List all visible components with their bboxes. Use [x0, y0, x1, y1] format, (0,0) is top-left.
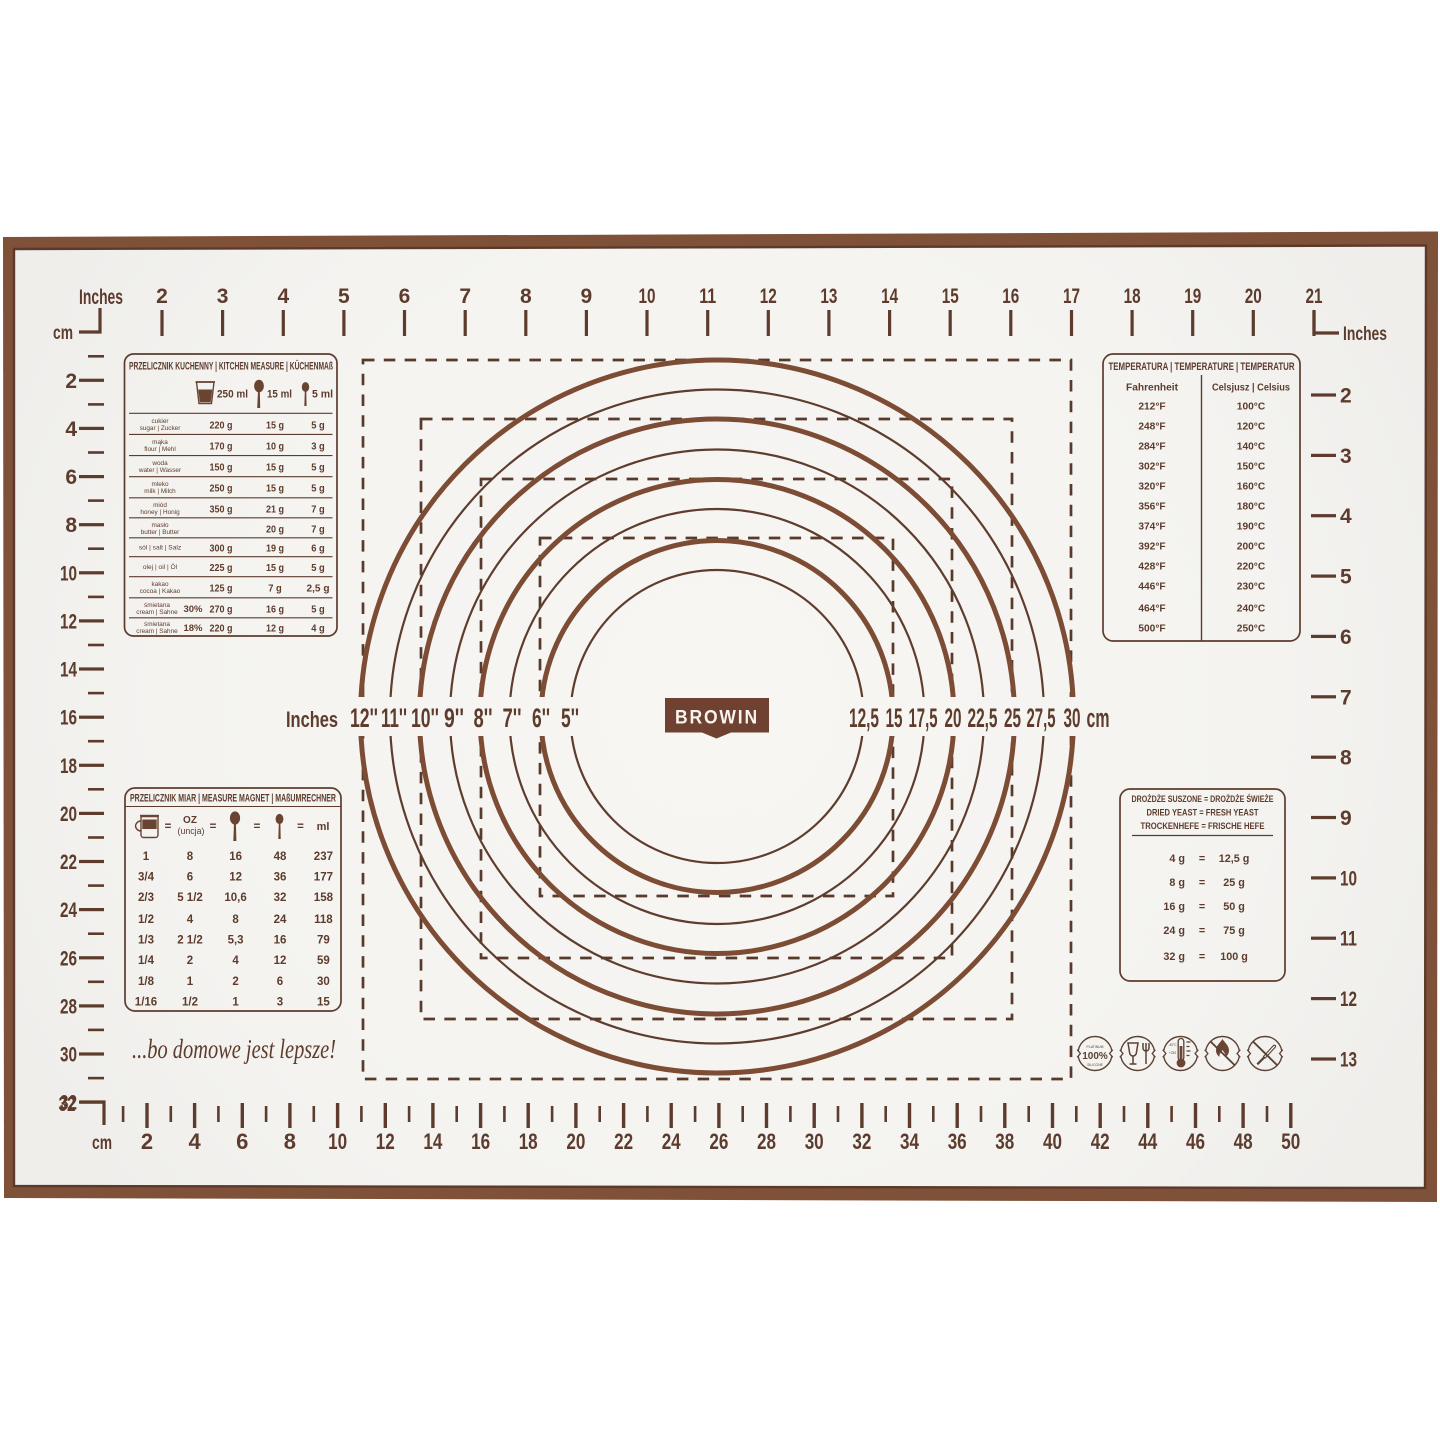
- svg-text:48: 48: [274, 851, 287, 863]
- svg-text:48: 48: [1234, 1129, 1253, 1154]
- svg-text:100 g: 100 g: [1220, 951, 1248, 963]
- svg-text:4: 4: [232, 955, 239, 967]
- svg-text:8: 8: [65, 514, 77, 537]
- svg-text:15 g: 15 g: [266, 420, 284, 432]
- svg-text:TEMPERATURA | TEMPERATURE | TE: TEMPERATURA | TEMPERATURE | TEMPERATUR: [1109, 361, 1295, 373]
- svg-text:12'': 12'': [350, 703, 378, 733]
- svg-text:18%: 18%: [183, 623, 203, 634]
- svg-text:5 g: 5 g: [311, 483, 325, 495]
- svg-text:100%: 100%: [1082, 1051, 1108, 1062]
- svg-text:BROWIN: BROWIN: [675, 708, 759, 729]
- svg-text:21: 21: [1306, 285, 1323, 308]
- svg-text:125 g: 125 g: [210, 583, 233, 595]
- svg-text:mleko: mleko: [151, 481, 168, 488]
- svg-text:14: 14: [60, 659, 77, 682]
- svg-text:cm: cm: [1087, 703, 1110, 733]
- svg-text:12: 12: [760, 285, 777, 308]
- svg-text:10: 10: [639, 285, 656, 308]
- svg-text:10: 10: [328, 1129, 347, 1154]
- svg-text:4: 4: [1340, 505, 1352, 528]
- svg-text:4: 4: [277, 285, 289, 308]
- svg-text:Inches: Inches: [79, 286, 123, 309]
- svg-text:428°F: 428°F: [1138, 562, 1165, 573]
- svg-text:42: 42: [1091, 1129, 1110, 1154]
- svg-text:2: 2: [187, 955, 193, 967]
- svg-text:21 g: 21 g: [266, 503, 284, 515]
- svg-text:190°C: 190°C: [1237, 522, 1266, 533]
- svg-text:=: =: [1199, 853, 1205, 865]
- svg-text:2: 2: [1340, 385, 1352, 408]
- svg-text:3/4: 3/4: [138, 872, 155, 884]
- svg-text:OZ: OZ: [183, 815, 197, 826]
- svg-text:10 g: 10 g: [266, 441, 284, 453]
- svg-text:34: 34: [900, 1129, 920, 1154]
- svg-text:PRZELICZNIK KUCHENNY | KITCHEN: PRZELICZNIK KUCHENNY | KITCHEN MEASURE |…: [129, 360, 333, 373]
- svg-text:15: 15: [317, 996, 330, 1008]
- svg-text:6 g: 6 g: [311, 543, 325, 555]
- svg-text:9: 9: [581, 285, 593, 308]
- svg-text:olej | oil | Öl: olej | oil | Öl: [143, 563, 178, 571]
- svg-text:17,5: 17,5: [909, 703, 938, 733]
- svg-text:5 ml: 5 ml: [312, 389, 333, 401]
- svg-text:6: 6: [187, 872, 193, 884]
- svg-text:38: 38: [995, 1129, 1014, 1154]
- svg-text:150 g: 150 g: [210, 462, 233, 474]
- svg-text:2: 2: [232, 976, 238, 988]
- svg-text:5'': 5'': [561, 703, 579, 733]
- svg-text:230°C: 230°C: [1237, 582, 1266, 593]
- svg-text:16: 16: [229, 851, 242, 863]
- svg-text:36: 36: [274, 872, 287, 884]
- svg-text:240°C: 240°C: [1237, 604, 1266, 615]
- svg-text:22: 22: [614, 1129, 633, 1154]
- svg-text:1/16: 1/16: [135, 996, 157, 1008]
- svg-text:250 g: 250 g: [210, 483, 233, 495]
- svg-text:30: 30: [805, 1129, 824, 1154]
- svg-text:11'': 11'': [381, 703, 407, 733]
- svg-text:Inches: Inches: [1343, 324, 1387, 345]
- svg-text:4: 4: [65, 418, 77, 441]
- svg-text:6: 6: [277, 976, 283, 988]
- svg-text:177: 177: [314, 872, 333, 884]
- svg-text:8 g: 8 g: [1169, 877, 1185, 889]
- svg-text:350 g: 350 g: [210, 503, 233, 515]
- svg-text:12 g: 12 g: [266, 623, 284, 635]
- svg-text:9: 9: [1340, 807, 1352, 830]
- svg-text:26: 26: [60, 947, 77, 970]
- svg-text:15: 15: [886, 703, 903, 733]
- svg-text:=: =: [1199, 925, 1205, 937]
- svg-text:2: 2: [65, 370, 77, 393]
- svg-text:30: 30: [60, 1044, 77, 1067]
- svg-text:32: 32: [274, 892, 287, 904]
- svg-text:14: 14: [423, 1129, 443, 1154]
- svg-text:=: =: [254, 821, 261, 833]
- svg-text:2: 2: [141, 1129, 153, 1154]
- svg-text:...bo domowe jest lepsze!: ...bo domowe jest lepsze!: [132, 1034, 336, 1064]
- svg-text:7 g: 7 g: [311, 503, 325, 515]
- svg-text:2,5 g: 2,5 g: [307, 583, 330, 595]
- svg-text:4 g: 4 g: [311, 623, 325, 635]
- svg-text:-40°C: -40°C: [1168, 1043, 1177, 1047]
- svg-text:44: 44: [1138, 1129, 1158, 1154]
- svg-text:118: 118: [314, 914, 333, 926]
- svg-text:PLATINUM: PLATINUM: [1087, 1045, 1104, 1049]
- svg-text:24 g: 24 g: [1163, 925, 1185, 937]
- svg-text:225 g: 225 g: [210, 562, 233, 574]
- svg-text:Fahrenheit: Fahrenheit: [1126, 383, 1179, 394]
- svg-text:170 g: 170 g: [210, 441, 233, 453]
- svg-text:śmietana: śmietana: [144, 602, 170, 609]
- svg-text:15 g: 15 g: [266, 562, 284, 574]
- svg-text:27,5: 27,5: [1027, 703, 1056, 733]
- svg-text:250 ml: 250 ml: [217, 389, 248, 401]
- svg-text:woda: woda: [151, 460, 168, 467]
- svg-text:11: 11: [699, 285, 716, 308]
- svg-text:2/3: 2/3: [138, 892, 154, 904]
- svg-text:12,5 g: 12,5 g: [1219, 853, 1250, 865]
- svg-text:8: 8: [1340, 747, 1352, 770]
- svg-text:+230: +230: [1169, 1051, 1176, 1055]
- svg-text:25: 25: [1004, 703, 1021, 733]
- svg-text:=: =: [1199, 901, 1205, 913]
- svg-text:8: 8: [284, 1129, 296, 1154]
- svg-text:15 g: 15 g: [266, 462, 284, 474]
- svg-text:PRZELICZNIK MIAR | MEASURE MAG: PRZELICZNIK MIAR | MEASURE MAGNET | MAßU…: [130, 793, 336, 805]
- svg-text:220°C: 220°C: [1237, 562, 1266, 573]
- svg-text:8: 8: [520, 285, 532, 308]
- svg-text:masło: masło: [151, 522, 168, 529]
- svg-text:=: =: [1199, 877, 1205, 889]
- svg-text:5: 5: [338, 285, 350, 308]
- svg-text:120°C: 120°C: [1237, 422, 1266, 433]
- svg-text:30%: 30%: [183, 604, 203, 615]
- svg-text:7: 7: [459, 285, 471, 308]
- svg-text:2 1/2: 2 1/2: [177, 935, 203, 947]
- svg-text:15: 15: [942, 285, 959, 308]
- svg-text:SILICONE: SILICONE: [1087, 1063, 1104, 1067]
- svg-text:392°F: 392°F: [1138, 542, 1165, 553]
- svg-text:18: 18: [60, 755, 77, 778]
- svg-text:356°F: 356°F: [1138, 502, 1165, 513]
- svg-text:16: 16: [1002, 285, 1019, 308]
- svg-text:50: 50: [1281, 1129, 1300, 1154]
- svg-text:12: 12: [274, 955, 287, 967]
- svg-text:sugar | Zucker: sugar | Zucker: [140, 425, 182, 432]
- svg-text:250°C: 250°C: [1237, 624, 1266, 635]
- svg-text:302°F: 302°F: [1138, 462, 1165, 473]
- svg-text:30: 30: [1064, 703, 1081, 733]
- svg-text:flour | Mehl: flour | Mehl: [144, 446, 176, 453]
- svg-text:4: 4: [187, 914, 194, 926]
- svg-text:1/2: 1/2: [138, 914, 154, 926]
- svg-text:200°C: 200°C: [1237, 542, 1266, 553]
- svg-text:374°F: 374°F: [1138, 522, 1165, 533]
- svg-text:5 g: 5 g: [311, 603, 325, 615]
- svg-text:50 g: 50 g: [1223, 901, 1245, 913]
- svg-text:150°C: 150°C: [1237, 462, 1266, 473]
- svg-text:26: 26: [709, 1129, 728, 1154]
- svg-text:160°C: 160°C: [1237, 482, 1266, 493]
- svg-text:12,5: 12,5: [849, 703, 879, 733]
- svg-text:cream | Sahne: cream | Sahne: [136, 628, 178, 635]
- svg-text:79: 79: [317, 935, 330, 947]
- svg-text:17: 17: [1063, 285, 1080, 308]
- svg-text:cm: cm: [53, 323, 73, 344]
- svg-text:2: 2: [156, 285, 168, 308]
- svg-text:10'': 10'': [411, 703, 439, 733]
- svg-text:śmietana: śmietana: [144, 621, 170, 628]
- svg-text:32: 32: [59, 1093, 76, 1116]
- svg-text:3: 3: [217, 285, 229, 308]
- svg-text:1: 1: [232, 996, 239, 1008]
- svg-text:24: 24: [662, 1129, 682, 1154]
- svg-text:212°F: 212°F: [1138, 402, 1165, 413]
- svg-text:DROŻDŻE SUSZONE = DROŻDŻE ŚWIE: DROŻDŻE SUSZONE = DROŻDŻE ŚWIEŻE: [1132, 793, 1274, 804]
- svg-text:15 ml: 15 ml: [267, 389, 292, 401]
- svg-text:TROCKENHEFE = FRISCHE HEFE: TROCKENHEFE = FRISCHE HEFE: [1141, 821, 1265, 831]
- svg-text:=: =: [1199, 951, 1205, 963]
- svg-text:270 g: 270 g: [210, 603, 233, 615]
- svg-text:24: 24: [274, 914, 287, 926]
- svg-text:=: =: [210, 821, 217, 833]
- svg-text:3 g: 3 g: [311, 441, 325, 453]
- svg-text:320°F: 320°F: [1138, 482, 1165, 493]
- svg-text:14: 14: [881, 285, 898, 308]
- svg-text:3: 3: [1340, 445, 1352, 468]
- svg-text:36: 36: [948, 1129, 967, 1154]
- svg-text:honey | Honig: honey | Honig: [140, 509, 180, 516]
- svg-text:1/3: 1/3: [138, 935, 154, 947]
- svg-text:7: 7: [1340, 686, 1352, 709]
- svg-text:12: 12: [229, 872, 242, 884]
- svg-text:butter | Butter: butter | Butter: [141, 529, 180, 536]
- svg-text:6'': 6'': [532, 703, 550, 733]
- svg-text:4: 4: [188, 1129, 201, 1154]
- svg-text:11: 11: [1340, 928, 1357, 951]
- svg-text:18: 18: [519, 1129, 538, 1154]
- svg-text:16: 16: [60, 707, 77, 730]
- svg-text:1: 1: [187, 976, 194, 988]
- svg-text:6: 6: [1340, 626, 1352, 649]
- svg-text:248°F: 248°F: [1138, 422, 1165, 433]
- svg-text:46: 46: [1186, 1129, 1205, 1154]
- svg-text:446°F: 446°F: [1138, 582, 1165, 593]
- svg-text:kakao: kakao: [151, 581, 168, 588]
- svg-text:milk | Milch: milk | Milch: [144, 488, 176, 495]
- svg-text:8: 8: [232, 914, 239, 926]
- svg-text:220 g: 220 g: [210, 623, 233, 635]
- svg-text:16: 16: [471, 1129, 490, 1154]
- svg-text:cocoa | Kakao: cocoa | Kakao: [140, 588, 181, 595]
- svg-text:24: 24: [60, 899, 77, 922]
- svg-text:220 g: 220 g: [210, 420, 233, 432]
- svg-text:cm: cm: [92, 1133, 112, 1154]
- svg-text:6: 6: [65, 466, 77, 489]
- svg-text:300 g: 300 g: [210, 543, 233, 555]
- svg-text:18: 18: [1124, 285, 1141, 308]
- svg-text:1/8: 1/8: [138, 976, 155, 988]
- svg-text:=: =: [165, 821, 172, 833]
- svg-text:20: 20: [60, 803, 77, 826]
- svg-text:10,6: 10,6: [224, 892, 246, 904]
- svg-text:7 g: 7 g: [311, 523, 325, 535]
- svg-text:ml: ml: [317, 821, 330, 833]
- svg-text:22,5: 22,5: [968, 703, 998, 733]
- svg-text:5 g: 5 g: [311, 562, 325, 574]
- svg-text:7 g: 7 g: [268, 583, 282, 595]
- svg-text:(uncja): (uncja): [178, 826, 205, 836]
- svg-text:1/2: 1/2: [182, 996, 198, 1008]
- svg-text:5,3: 5,3: [228, 935, 244, 947]
- svg-text:5: 5: [1340, 566, 1352, 589]
- svg-text:7'': 7'': [503, 703, 522, 733]
- svg-text:sól | salt | Salz: sól | salt | Salz: [139, 545, 181, 552]
- svg-text:1/4: 1/4: [138, 955, 155, 967]
- svg-text:8'': 8'': [474, 703, 493, 733]
- svg-text:12: 12: [60, 610, 77, 633]
- svg-text:=: =: [297, 821, 304, 833]
- svg-text:10: 10: [1340, 867, 1357, 890]
- svg-text:28: 28: [757, 1129, 776, 1154]
- svg-text:28: 28: [60, 995, 77, 1018]
- svg-text:5 g: 5 g: [311, 462, 325, 474]
- svg-text:40: 40: [1043, 1129, 1062, 1154]
- svg-text:cream | Sahne: cream | Sahne: [136, 609, 178, 616]
- svg-text:13: 13: [820, 285, 837, 308]
- svg-text:32: 32: [852, 1129, 871, 1154]
- svg-text:158: 158: [314, 892, 334, 904]
- svg-text:22: 22: [60, 851, 77, 874]
- svg-text:16 g: 16 g: [1163, 901, 1185, 913]
- svg-text:16 g: 16 g: [266, 603, 284, 615]
- svg-text:284°F: 284°F: [1138, 442, 1165, 453]
- svg-text:12: 12: [1340, 988, 1357, 1011]
- svg-text:Celsjusz | Celsius: Celsjusz | Celsius: [1212, 383, 1291, 394]
- svg-text:4 g: 4 g: [1169, 853, 1185, 865]
- svg-text:Inches: Inches: [286, 707, 338, 732]
- svg-text:DRIED YEAST = FRESH YEAST: DRIED YEAST = FRESH YEAST: [1147, 808, 1259, 818]
- svg-text:25 g: 25 g: [1223, 877, 1245, 889]
- svg-text:180°C: 180°C: [1237, 502, 1266, 513]
- svg-text:59: 59: [317, 955, 330, 967]
- svg-text:12: 12: [376, 1129, 395, 1154]
- svg-text:water | Wasser: water | Wasser: [138, 467, 182, 474]
- svg-text:mąka: mąka: [152, 439, 168, 446]
- svg-text:3: 3: [277, 996, 283, 1008]
- svg-text:20 g: 20 g: [266, 523, 284, 535]
- svg-text:500°F: 500°F: [1138, 624, 1165, 635]
- svg-text:464°F: 464°F: [1138, 604, 1165, 615]
- svg-text:8: 8: [187, 851, 194, 863]
- svg-text:5 g: 5 g: [311, 420, 325, 432]
- svg-text:20: 20: [945, 703, 962, 733]
- svg-text:5 1/2: 5 1/2: [177, 892, 203, 904]
- svg-text:32 g: 32 g: [1163, 951, 1185, 963]
- svg-text:13: 13: [1340, 1049, 1357, 1072]
- svg-text:1: 1: [143, 851, 150, 863]
- svg-text:75 g: 75 g: [1223, 925, 1245, 937]
- svg-text:10: 10: [60, 562, 77, 585]
- svg-text:20: 20: [566, 1129, 585, 1154]
- svg-text:miód: miód: [153, 502, 167, 509]
- svg-text:9'': 9'': [444, 703, 464, 733]
- svg-text:15 g: 15 g: [266, 483, 284, 495]
- svg-text:6: 6: [399, 285, 411, 308]
- svg-text:20: 20: [1245, 285, 1262, 308]
- svg-text:30: 30: [317, 976, 330, 988]
- svg-text:6: 6: [236, 1129, 248, 1154]
- svg-text:19 g: 19 g: [266, 543, 284, 555]
- svg-text:100°C: 100°C: [1237, 402, 1266, 413]
- svg-text:140°C: 140°C: [1237, 442, 1266, 453]
- svg-text:16: 16: [274, 935, 287, 947]
- svg-text:237: 237: [314, 851, 333, 863]
- svg-text:cukier: cukier: [151, 418, 169, 425]
- svg-text:19: 19: [1184, 285, 1201, 308]
